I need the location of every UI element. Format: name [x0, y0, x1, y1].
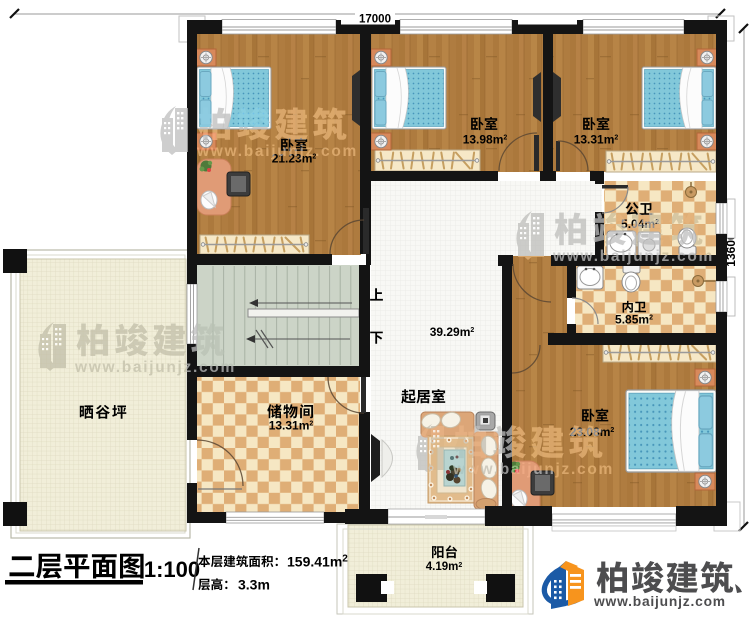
svg-text:www.baijunjz.com: www.baijunjz.com: [593, 594, 726, 609]
svg-text:4.19m2: 4.19m2: [426, 561, 463, 573]
svg-text:3.3m: 3.3m: [238, 577, 270, 593]
svg-text:13.98m2: 13.98m2: [463, 133, 508, 147]
svg-text:39.29m2: 39.29m2: [430, 325, 475, 339]
svg-text:159.41m2: 159.41m2: [287, 554, 348, 570]
svg-text:5.85m2: 5.85m2: [615, 313, 653, 327]
svg-text:17000: 17000: [359, 14, 391, 26]
svg-text:13.31m2: 13.31m2: [574, 133, 619, 147]
svg-text:1:100: 1:100: [144, 557, 200, 582]
svg-text:13.31m2: 13.31m2: [269, 419, 314, 433]
